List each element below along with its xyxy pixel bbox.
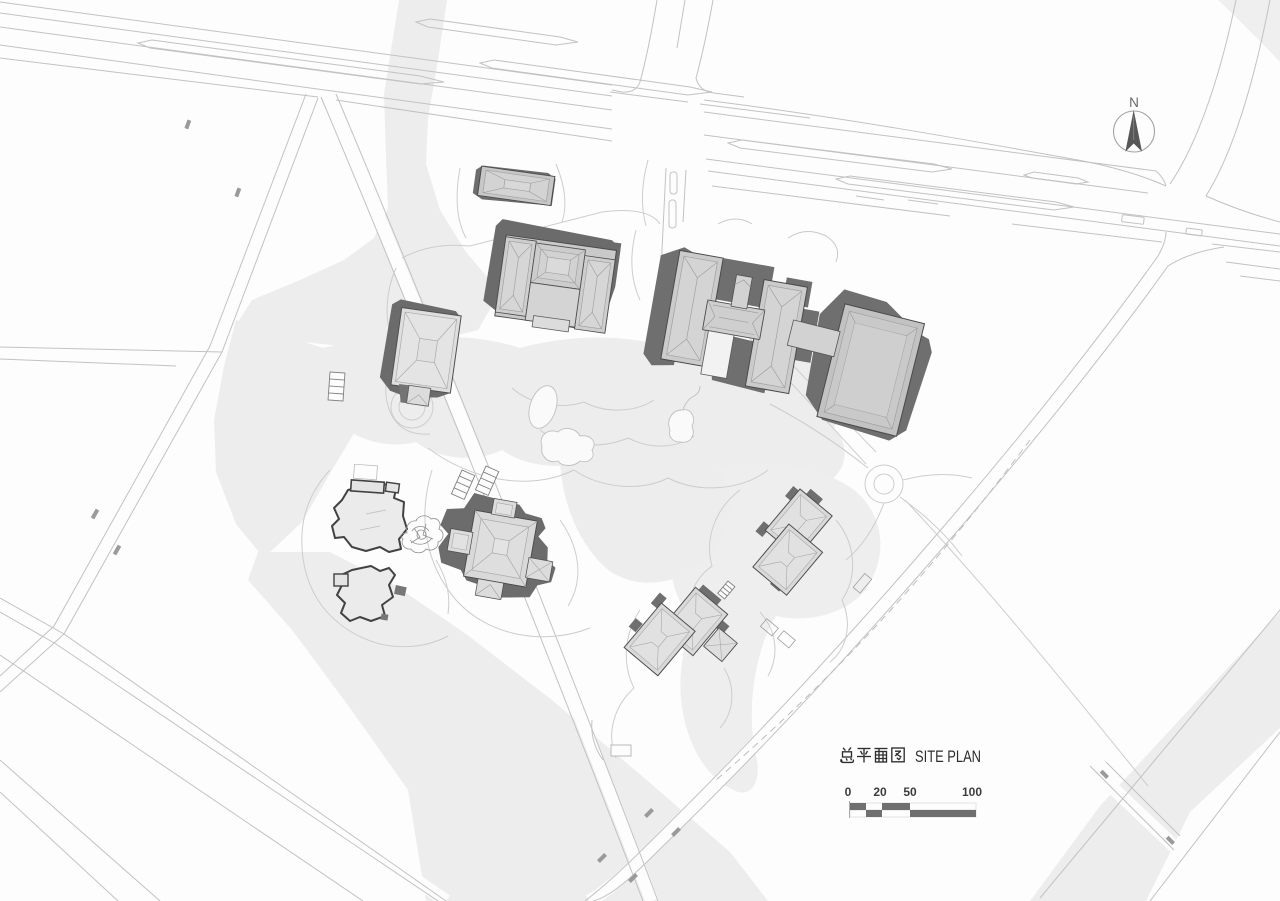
svg-text:N: N	[1129, 95, 1139, 110]
svg-text:20: 20	[873, 785, 887, 799]
svg-text:0: 0	[845, 785, 852, 799]
svg-text:50: 50	[903, 785, 917, 799]
svg-text:100: 100	[962, 785, 982, 799]
svg-text:SITE PLAN: SITE PLAN	[915, 747, 981, 766]
